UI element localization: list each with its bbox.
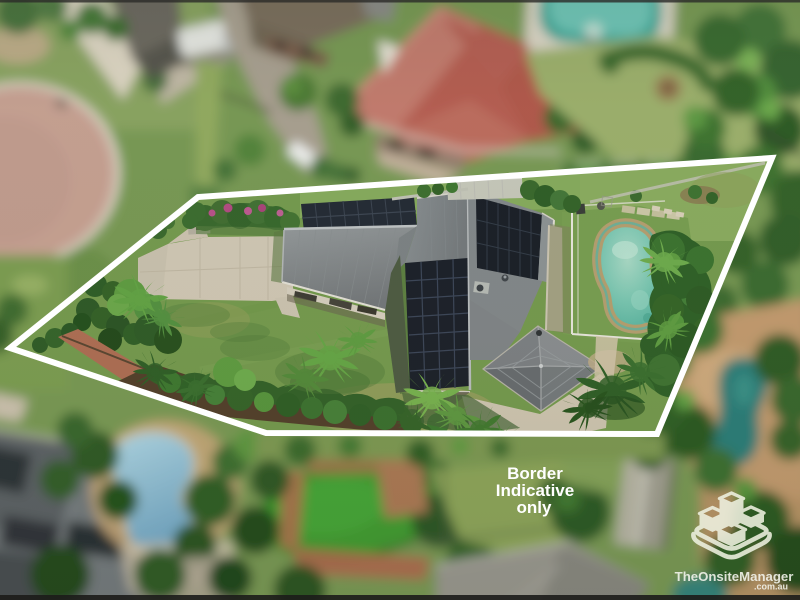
svg-text:.com.au: .com.au bbox=[754, 582, 788, 592]
svg-text:only: only bbox=[517, 498, 552, 517]
